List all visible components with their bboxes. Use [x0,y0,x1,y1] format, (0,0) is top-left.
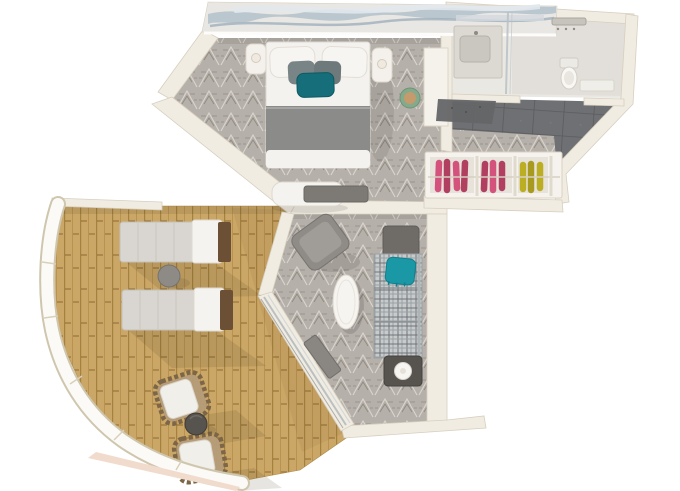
living-right-wall [427,214,447,424]
toilet-seat [564,71,574,85]
wall-art-lit-edge [204,33,556,35]
deck-round-table [158,265,180,287]
bed-foot-fold [266,150,370,168]
mat-speck [479,106,481,108]
floorplan-svg [0,0,680,491]
floorplan-render [0,0,680,491]
mat-speck [451,107,453,109]
living-top-shadow [290,214,436,219]
shower-control-icon [565,28,567,30]
king-bed [266,42,370,168]
teal-accent-pillow [297,72,335,97]
lounger-pad [120,222,196,262]
clothes-item [438,163,439,189]
sun-lounger-top [120,220,231,263]
tv-console [304,186,368,202]
mat-speck [465,111,467,113]
lounger-pad [122,290,198,330]
shower-control-icon [557,28,559,30]
faucet-icon [474,31,478,35]
bed-blanket [266,106,370,154]
lamp-icon [252,54,261,63]
sofa-teal-throw [384,257,416,289]
lounger-backrest [192,220,222,263]
lounger-backrest [194,288,224,331]
shower-head-icon [552,18,586,25]
bathroom-bench [580,80,614,91]
bathroom-sink [460,36,490,62]
wardrobe-unit [425,152,562,198]
clothes-item [456,164,457,188]
shower-control-icon [573,28,575,30]
lamp-icon [378,60,387,69]
lounger-hood [218,222,231,262]
clothes-item [464,163,465,189]
sofa-end-unit-top [383,226,419,256]
bathroom-divider-wall-right [584,98,624,106]
sun-lounger-bottom [122,288,233,331]
stool-top [404,92,416,104]
table-lamp-icon [400,368,406,374]
bathroom-mirror [456,15,544,21]
lounger-hood [220,290,233,330]
